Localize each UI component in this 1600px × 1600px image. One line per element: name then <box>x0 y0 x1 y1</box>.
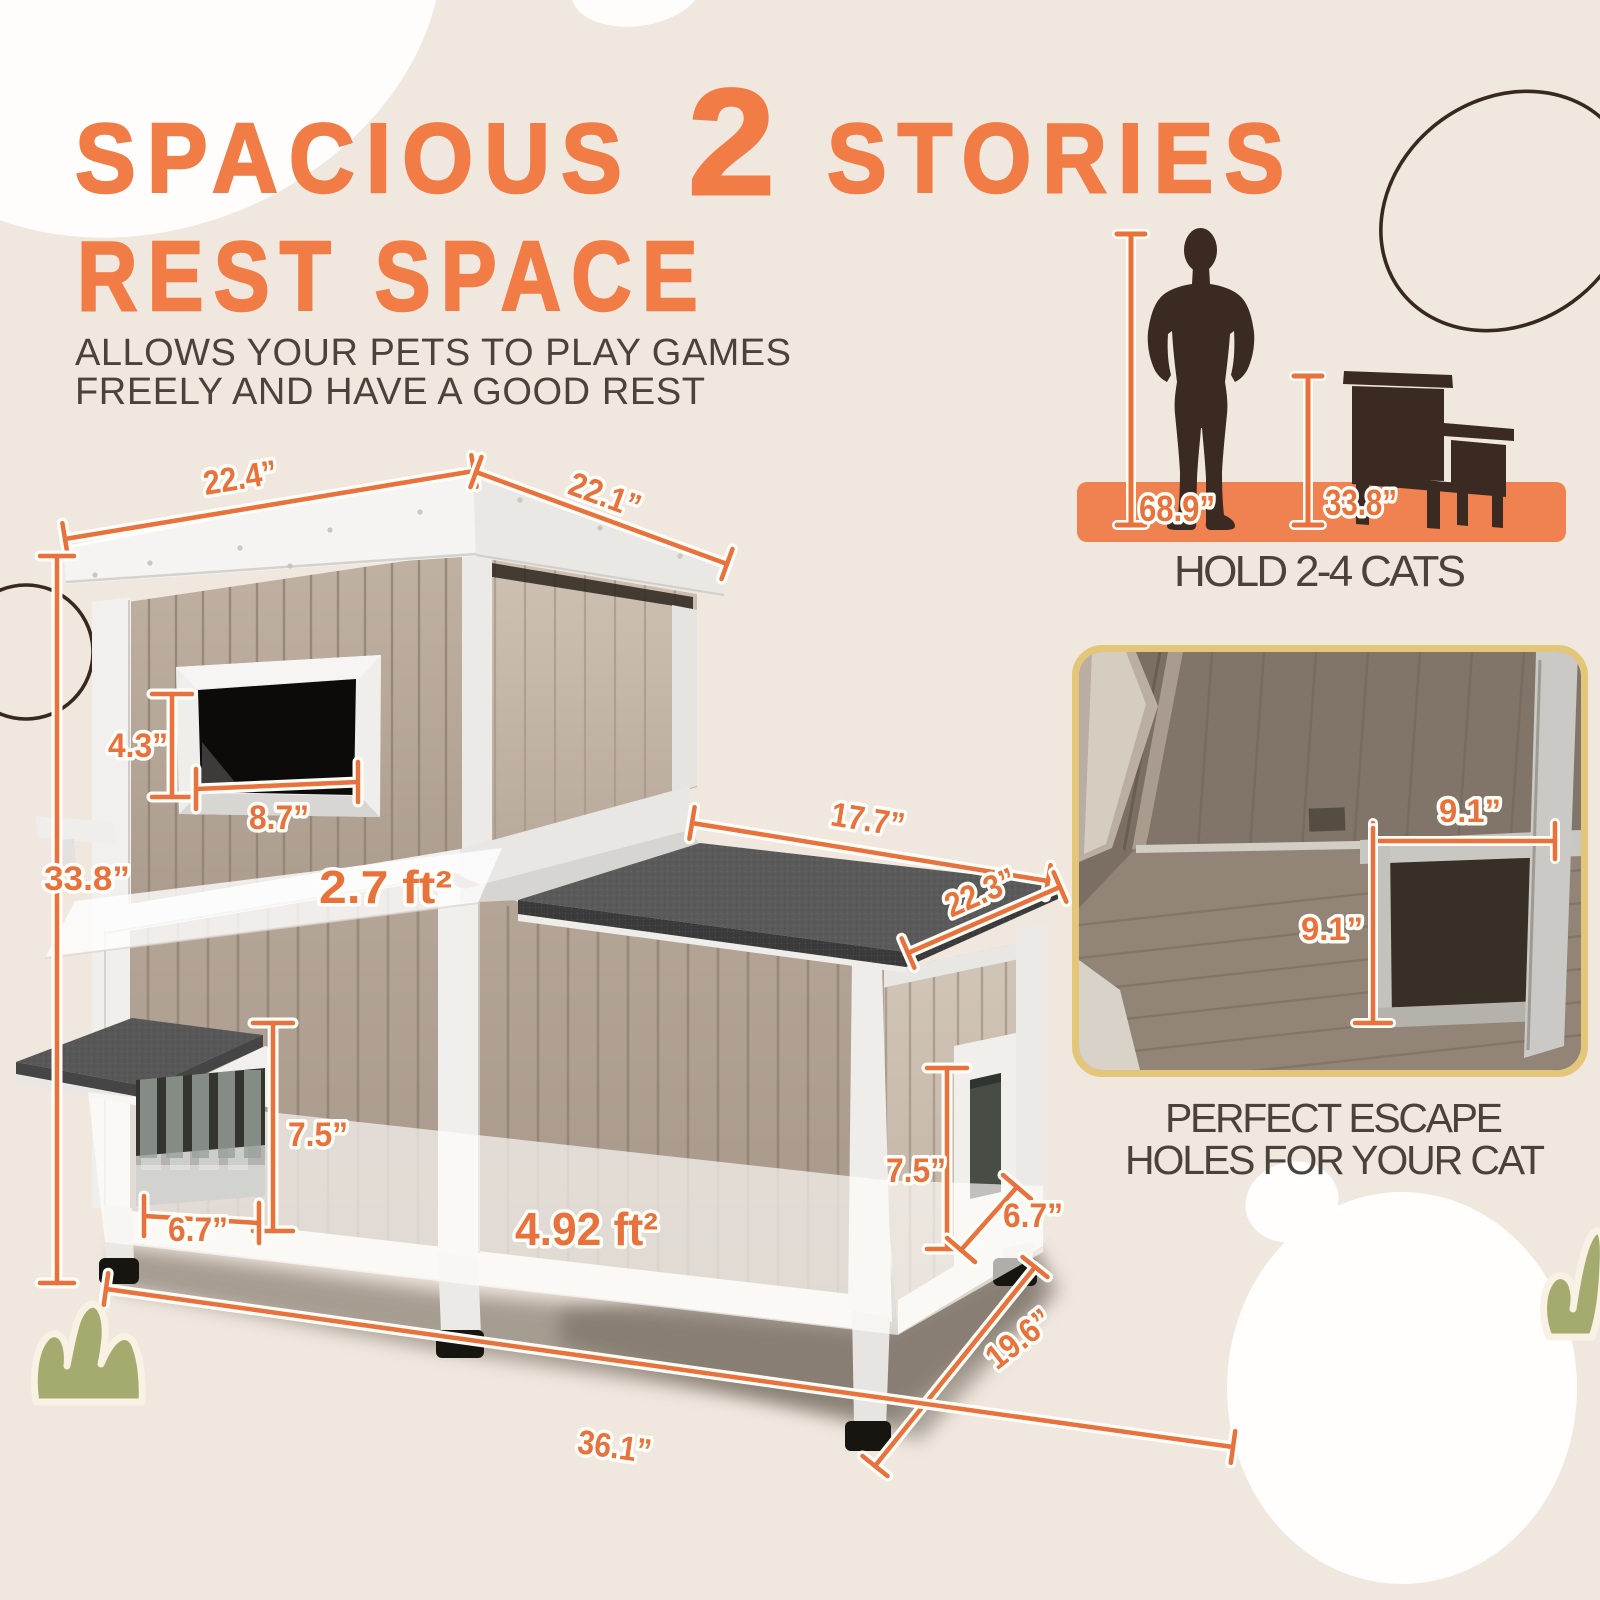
svg-text:4.92 ft²: 4.92 ft² <box>515 1203 658 1255</box>
svg-text:2: 2 <box>688 57 775 226</box>
svg-text:7.5”: 7.5” <box>288 1116 348 1154</box>
svg-text:8.7”: 8.7” <box>249 799 309 837</box>
svg-text:2.7 ft²: 2.7 ft² <box>319 861 452 913</box>
svg-text:FREELY AND HAVE A GOOD REST: FREELY AND HAVE A GOOD REST <box>75 371 705 413</box>
svg-text:STORIES: STORIES <box>827 103 1295 213</box>
svg-text:6.7”: 6.7” <box>168 1211 228 1249</box>
svg-text:HOLD 2-4 CATS: HOLD 2-4 CATS <box>1174 547 1466 596</box>
svg-text:6.7”: 6.7” <box>1003 1197 1063 1235</box>
svg-text:SPACIOUS: SPACIOUS <box>75 103 633 213</box>
svg-text:33.8”: 33.8” <box>1325 482 1397 523</box>
svg-text:33.8”: 33.8” <box>44 860 130 898</box>
svg-text:4.3”: 4.3” <box>108 727 168 765</box>
svg-text:7.5”: 7.5” <box>886 1152 946 1190</box>
svg-text:PERFECT ESCAPE: PERFECT ESCAPE <box>1165 1095 1503 1141</box>
svg-text:9.1”: 9.1” <box>1439 793 1501 829</box>
svg-text:68.9”: 68.9” <box>1139 488 1215 529</box>
svg-text:REST SPACE: REST SPACE <box>77 221 708 331</box>
svg-text:9.1”: 9.1” <box>1301 911 1363 947</box>
svg-text:ALLOWS YOUR PETS TO PLAY GAMES: ALLOWS YOUR PETS TO PLAY GAMES <box>75 332 791 374</box>
svg-text:HOLES FOR YOUR CAT: HOLES FOR YOUR CAT <box>1125 1137 1545 1183</box>
